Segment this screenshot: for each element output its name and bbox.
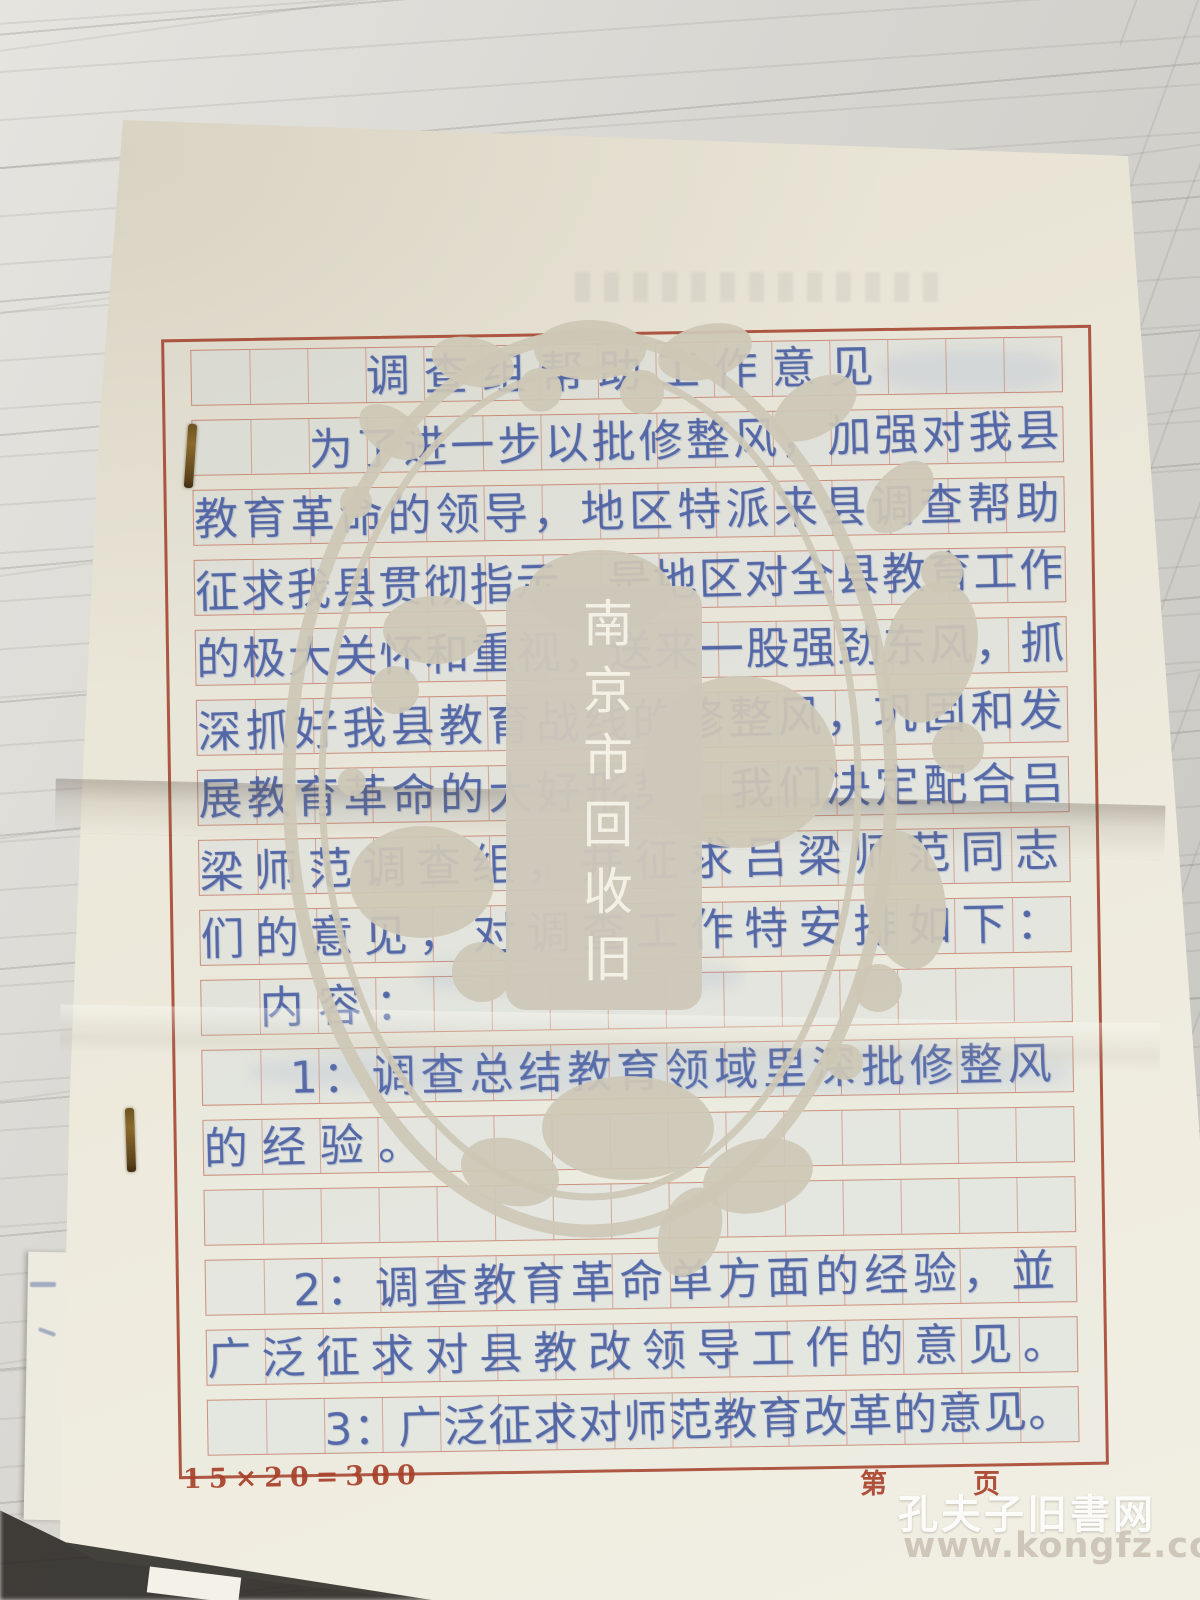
handwriting-line: 调查组帮助工作意见 (365, 341, 888, 403)
grid-cell (784, 1181, 843, 1236)
grid-cell (266, 1399, 325, 1454)
grid-cell (667, 1113, 726, 1168)
manuscript-row: 广泛征求对县教改领导工作的意见。 (206, 1316, 1079, 1386)
grid-cell (726, 1182, 785, 1237)
grid-cell (192, 420, 251, 475)
manuscript-row: 3：广泛征求对师范教育改革的意见。 (207, 1386, 1080, 1456)
manuscript-row: 教育革命的领导，地区特派来县调查帮助 (192, 476, 1065, 546)
grid-cell (841, 1110, 900, 1165)
grid-cell (206, 1260, 265, 1315)
handwriting-line: 的经验。 (203, 1118, 436, 1176)
faint-pencil-marks (575, 272, 945, 302)
grid-cell (435, 1116, 494, 1171)
grid-cell (250, 419, 309, 474)
grid-cell (842, 1180, 901, 1235)
handwriting-line: 2：调查教育革命单方面的经验，並 (292, 1245, 1060, 1317)
ink-speck (30, 1282, 56, 1287)
photo-stage: 调查组帮助工作意见为了进一步以批修整风，加强对我县教育革命的领导，地区特派来县调… (0, 0, 1200, 1600)
grid-cell (204, 1190, 263, 1245)
grid-cell (610, 1184, 669, 1239)
grid-cell (262, 1189, 321, 1244)
grid-cell (1015, 1107, 1074, 1162)
grid-cell (436, 1186, 495, 1241)
grid-cell (307, 348, 366, 403)
manuscript-row: 为了进一步以批修整风，加强对我县 (191, 406, 1064, 476)
kongfz-url-watermark: www.kongfz.com (903, 1526, 1200, 1566)
grid-cell (494, 1185, 553, 1240)
grid-cell (1016, 1177, 1075, 1232)
page-label-first: 第 (860, 1469, 887, 1500)
grid-cell (955, 968, 1014, 1023)
grid-cell (899, 1109, 958, 1164)
handwriting-line: 为了进一步以批修整风，加强对我县 (308, 405, 1063, 477)
paper-spec-label: 15×20=300 (183, 1460, 423, 1495)
grid-cell (1013, 967, 1072, 1022)
grid-cell (900, 1179, 959, 1234)
grid-cell (897, 969, 956, 1024)
grid-cell (668, 1183, 727, 1238)
grid-cell (551, 1114, 610, 1169)
grid-cell (208, 1400, 267, 1455)
grid-cell (783, 1111, 842, 1166)
watermark-center-label: 南京市回收旧 (579, 597, 629, 999)
grid-cell (609, 1114, 668, 1169)
grid-cell (552, 1184, 611, 1239)
grid-cell (493, 1115, 552, 1170)
manuscript-row (203, 1176, 1076, 1246)
handwriting-line: 3：广泛征求对师范教育改革的意见。 (324, 1385, 1074, 1457)
manuscript-row: 的经验。 (202, 1106, 1075, 1176)
grid-cell (191, 350, 250, 405)
grid-cell (249, 349, 308, 404)
watermark-center-plate: 南京市回收旧 (506, 586, 702, 1010)
grid-cell (839, 970, 898, 1025)
grid-cell (378, 1187, 437, 1242)
erased-text-smudge (880, 350, 1060, 392)
grid-cell (957, 1108, 1016, 1163)
grid-cell (320, 1188, 379, 1243)
grid-cell (725, 1112, 784, 1167)
manuscript-row: 2：调查教育革命单方面的经验，並 (205, 1246, 1078, 1316)
grid-cell (958, 1178, 1017, 1233)
